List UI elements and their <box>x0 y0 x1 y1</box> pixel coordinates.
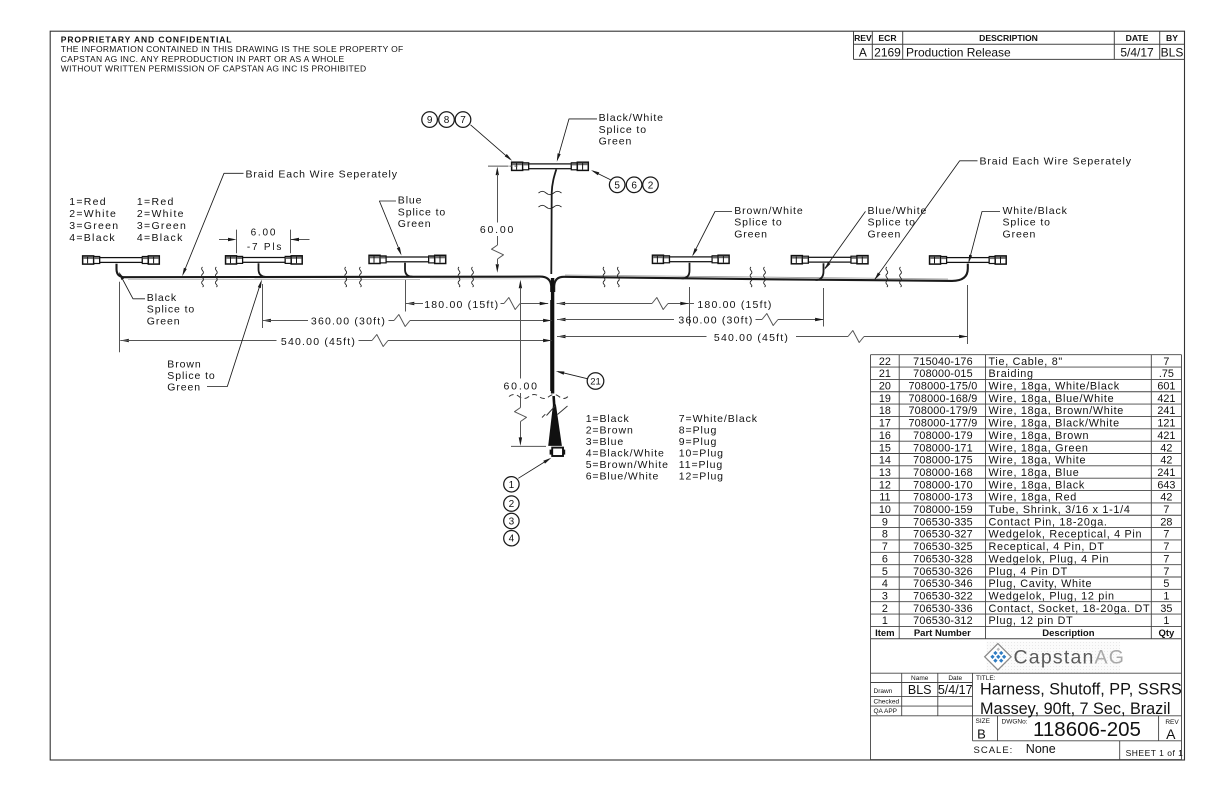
svg-text:118606-205: 118606-205 <box>1033 718 1141 741</box>
svg-text:Contact, Socket, 18-20ga. DT: Contact, Socket, 18-20ga. DT <box>989 603 1151 615</box>
svg-text:REV: REV <box>1165 719 1179 726</box>
svg-text:Description: Description <box>1042 628 1094 639</box>
svg-text:4: 4 <box>882 578 888 590</box>
svg-text:REV: REV <box>854 33 872 43</box>
svg-text:16: 16 <box>879 430 891 442</box>
svg-text:B: B <box>977 727 986 742</box>
svg-text:2: 2 <box>509 499 515 510</box>
svg-text:42: 42 <box>1160 442 1172 454</box>
svg-text:706530-335: 706530-335 <box>913 516 973 528</box>
svg-text:708000-168/9: 708000-168/9 <box>908 393 977 405</box>
svg-text:Drawn: Drawn <box>874 688 893 695</box>
svg-text:421: 421 <box>1157 393 1175 405</box>
svg-text:4: 4 <box>509 534 515 545</box>
svg-text:Wire, 18ga, Black/White: Wire, 18ga, Black/White <box>989 418 1120 430</box>
svg-text:CAPSTAN AG INC. ANY REPRODUCTI: CAPSTAN AG INC. ANY REPRODUCTION IN PART… <box>61 54 345 64</box>
svg-text:715040-176: 715040-176 <box>913 356 973 368</box>
svg-text:BY: BY <box>1166 33 1178 43</box>
svg-text:8=Plug: 8=Plug <box>679 424 717 436</box>
svg-text:180.00 (15ft): 180.00 (15ft) <box>697 299 772 311</box>
svg-text:4=Black: 4=Black <box>69 232 116 244</box>
svg-text:Green: Green <box>147 315 181 327</box>
svg-text:3=Green: 3=Green <box>69 220 119 232</box>
svg-text:1: 1 <box>882 615 888 627</box>
svg-text:708000-173: 708000-173 <box>913 492 973 504</box>
svg-text:241: 241 <box>1157 467 1175 479</box>
svg-text:9=Plug: 9=Plug <box>679 436 717 448</box>
svg-text:Green: Green <box>1003 228 1037 240</box>
svg-text:706530-327: 706530-327 <box>913 529 973 541</box>
svg-text:BLS: BLS <box>908 683 932 697</box>
svg-text:Part Number: Part Number <box>914 628 971 639</box>
svg-text:WITHOUT WRITTEN PERMISSION OF: WITHOUT WRITTEN PERMISSION OF CAPSTAN AG… <box>61 64 367 74</box>
svg-text:10=Plug: 10=Plug <box>679 447 724 459</box>
svg-text:706530-346: 706530-346 <box>913 578 973 590</box>
svg-text:1: 1 <box>1163 590 1169 602</box>
svg-text:7: 7 <box>460 115 466 126</box>
svg-text:12: 12 <box>879 479 891 491</box>
svg-text:28: 28 <box>1160 516 1172 528</box>
svg-text:8: 8 <box>444 115 450 126</box>
svg-text:DESCRIPTION: DESCRIPTION <box>979 33 1038 43</box>
svg-text:60.00: 60.00 <box>480 224 515 236</box>
svg-text:9: 9 <box>427 115 433 126</box>
svg-text:SHEET 1 of 1: SHEET 1 of 1 <box>1126 748 1184 758</box>
svg-text:CapstanAG: CapstanAG <box>1014 647 1126 669</box>
svg-text:35: 35 <box>1160 603 1172 615</box>
svg-text:3=Green: 3=Green <box>137 220 187 232</box>
svg-text:7=White/Black: 7=White/Black <box>679 413 758 425</box>
svg-text:643: 643 <box>1157 479 1175 491</box>
svg-text:708000-168: 708000-168 <box>913 467 973 479</box>
svg-text:2: 2 <box>882 603 888 615</box>
svg-text:Item: Item <box>875 628 895 639</box>
svg-text:.75: .75 <box>1159 368 1174 380</box>
svg-text:708000-175: 708000-175 <box>913 455 973 467</box>
svg-text:Splice to: Splice to <box>147 304 195 316</box>
svg-text:Wire, 18ga, White/Black: Wire, 18ga, White/Black <box>989 381 1120 393</box>
svg-text:Splice to: Splice to <box>1003 217 1051 229</box>
svg-text:Harness, Shutoff, PP, SSRS: Harness, Shutoff, PP, SSRS <box>980 680 1182 698</box>
svg-text:706530-322: 706530-322 <box>913 590 973 602</box>
svg-text:QA APP: QA APP <box>874 708 898 715</box>
svg-text:8: 8 <box>882 529 888 541</box>
svg-text:6.00: 6.00 <box>251 228 278 239</box>
svg-text:12=Plug: 12=Plug <box>679 470 724 482</box>
svg-text:18: 18 <box>879 405 891 417</box>
svg-text:Wire, 18ga, Blue/White: Wire, 18ga, Blue/White <box>989 393 1115 405</box>
svg-text:Wire, 18ga, White: Wire, 18ga, White <box>989 455 1087 467</box>
svg-text:1=Red: 1=Red <box>69 196 107 208</box>
svg-text:Splice to: Splice to <box>599 124 647 136</box>
svg-text:6: 6 <box>631 180 637 191</box>
svg-text:Name: Name <box>911 675 929 682</box>
svg-text:Green: Green <box>398 218 432 230</box>
svg-text:Braiding: Braiding <box>989 368 1034 380</box>
svg-text:SCALE:: SCALE: <box>974 745 1014 756</box>
svg-text:7: 7 <box>1163 356 1169 368</box>
svg-text:5: 5 <box>1163 578 1169 590</box>
svg-text:1: 1 <box>1163 615 1169 627</box>
svg-text:241: 241 <box>1157 405 1175 417</box>
svg-text:5/4/17: 5/4/17 <box>1120 46 1154 60</box>
svg-text:706530-326: 706530-326 <box>913 566 973 578</box>
svg-text:Wire, 18ga, Brown: Wire, 18ga, Brown <box>989 430 1090 442</box>
svg-text:1=Black: 1=Black <box>586 413 630 425</box>
svg-text:Blue: Blue <box>398 195 423 207</box>
svg-text:2=Brown: 2=Brown <box>586 424 634 436</box>
svg-text:9: 9 <box>882 516 888 528</box>
svg-text:A: A <box>859 46 867 60</box>
svg-text:2=White: 2=White <box>137 208 185 220</box>
svg-text:13: 13 <box>879 467 891 479</box>
svg-text:540.00 (45ft): 540.00 (45ft) <box>714 332 789 344</box>
svg-text:Date: Date <box>948 675 962 682</box>
svg-text:706530-325: 706530-325 <box>913 541 973 553</box>
svg-text:14: 14 <box>879 455 891 467</box>
svg-text:Wedgelok, Plug, 12 pin: Wedgelok, Plug, 12 pin <box>989 590 1115 602</box>
svg-text:10: 10 <box>879 504 891 516</box>
svg-text:-7 Pls: -7 Pls <box>247 242 283 253</box>
svg-text:706530-336: 706530-336 <box>913 603 973 615</box>
svg-text:20: 20 <box>879 381 891 393</box>
svg-text:2=White: 2=White <box>69 208 117 220</box>
svg-text:5/4/17: 5/4/17 <box>938 683 973 697</box>
svg-text:708000-179: 708000-179 <box>913 430 973 442</box>
svg-text:ECR: ECR <box>878 33 897 43</box>
svg-text:5: 5 <box>614 180 620 191</box>
svg-text:Wire, 18ga, Red: Wire, 18ga, Red <box>989 492 1078 504</box>
svg-text:Green: Green <box>734 228 768 240</box>
svg-text:15: 15 <box>879 442 891 454</box>
svg-text:1=Red: 1=Red <box>137 196 175 208</box>
svg-text:Contact Pin, 18-20ga.: Contact Pin, 18-20ga. <box>989 516 1108 528</box>
svg-text:708000-179/9: 708000-179/9 <box>908 405 977 417</box>
svg-text:Brown: Brown <box>167 358 201 370</box>
svg-text:Splice to: Splice to <box>398 206 446 218</box>
svg-text:Braid Each Wire Seperately: Braid Each Wire Seperately <box>246 168 398 180</box>
svg-text:2: 2 <box>648 180 654 191</box>
svg-text:11: 11 <box>879 492 890 504</box>
svg-text:708000-175/0: 708000-175/0 <box>908 381 977 393</box>
svg-text:Black/White: Black/White <box>599 112 664 124</box>
svg-text:60.00: 60.00 <box>504 381 539 393</box>
svg-text:Plug, Cavity, White: Plug, Cavity, White <box>989 578 1093 590</box>
svg-text:1: 1 <box>509 480 515 491</box>
svg-text:21: 21 <box>879 368 891 380</box>
svg-text:Green: Green <box>167 382 201 394</box>
svg-text:706530-312: 706530-312 <box>913 615 973 627</box>
svg-text:Brown/White: Brown/White <box>734 205 803 217</box>
svg-text:Splice to: Splice to <box>868 217 916 229</box>
svg-text:Qty: Qty <box>1158 628 1175 639</box>
svg-text:11=Plug: 11=Plug <box>679 459 723 471</box>
svg-text:Splice to: Splice to <box>734 217 782 229</box>
svg-text:Checked: Checked <box>874 698 900 705</box>
svg-text:Plug, 4 Pin DT: Plug, 4 Pin DT <box>989 566 1068 578</box>
svg-text:601: 601 <box>1157 381 1175 393</box>
svg-text:Splice to: Splice to <box>167 370 215 382</box>
svg-text:708000-171: 708000-171 <box>913 442 973 454</box>
svg-text:42: 42 <box>1160 455 1172 467</box>
svg-text:540.00 (45ft): 540.00 (45ft) <box>281 336 356 348</box>
svg-text:Wire, 18ga, Blue: Wire, 18ga, Blue <box>989 467 1080 479</box>
svg-text:7: 7 <box>882 541 888 553</box>
svg-text:Green: Green <box>599 136 633 148</box>
svg-text:Black: Black <box>147 292 177 304</box>
svg-text:6=Blue/White: 6=Blue/White <box>586 470 660 482</box>
svg-text:SIZE: SIZE <box>976 718 991 725</box>
svg-text:19: 19 <box>879 393 891 405</box>
svg-text:Plug, 12 pin DT: Plug, 12 pin DT <box>989 615 1074 627</box>
svg-text:A: A <box>1166 726 1176 742</box>
svg-text:Receptical, 4 Pin, DT: Receptical, 4 Pin, DT <box>989 541 1105 553</box>
svg-text:180.00 (15ft): 180.00 (15ft) <box>424 299 499 311</box>
svg-text:Wedgelok, Plug, 4 Pin: Wedgelok, Plug, 4 Pin <box>989 553 1110 565</box>
svg-text:708000-015: 708000-015 <box>913 368 973 380</box>
svg-text:Wire, 18ga, Black: Wire, 18ga, Black <box>989 479 1086 491</box>
svg-text:121: 121 <box>1157 418 1175 430</box>
svg-text:7: 7 <box>1163 541 1169 553</box>
svg-text:6: 6 <box>882 553 888 565</box>
svg-text:4=Black: 4=Black <box>137 232 184 244</box>
svg-text:THE INFORMATION CONTAINED IN T: THE INFORMATION CONTAINED IN THIS DRAWIN… <box>61 44 404 54</box>
svg-text:3: 3 <box>509 517 515 528</box>
svg-text:Wire, 18ga, Green: Wire, 18ga, Green <box>989 442 1089 454</box>
svg-text:Wedgelok, Receptical, 4 Pin: Wedgelok, Receptical, 4 Pin <box>989 529 1143 541</box>
svg-text:Massey, 90ft, 7 Sec, Brazil: Massey, 90ft, 7 Sec, Brazil <box>980 700 1170 718</box>
svg-text:7: 7 <box>1163 504 1169 516</box>
svg-text:17: 17 <box>879 418 891 430</box>
svg-text:7: 7 <box>1163 566 1169 578</box>
svg-text:Production Release: Production Release <box>906 46 1011 60</box>
svg-text:21: 21 <box>590 376 601 387</box>
svg-text:706530-328: 706530-328 <box>913 553 973 565</box>
svg-text:White/Black: White/Black <box>1003 205 1068 217</box>
svg-text:3=Blue: 3=Blue <box>586 436 624 448</box>
svg-text:Tie, Cable, 8": Tie, Cable, 8" <box>989 356 1063 368</box>
svg-text:Tube, Shrink, 3/16 x 1-1/4: Tube, Shrink, 3/16 x 1-1/4 <box>989 504 1131 516</box>
svg-text:None: None <box>1026 742 1056 756</box>
svg-text:4=Black/White: 4=Black/White <box>586 447 665 459</box>
svg-text:5=Brown/White: 5=Brown/White <box>586 459 669 471</box>
svg-text:DATE: DATE <box>1126 33 1149 43</box>
svg-text:421: 421 <box>1157 430 1175 442</box>
svg-text:708000-170: 708000-170 <box>913 479 973 491</box>
svg-text:5: 5 <box>882 566 888 578</box>
svg-text:Blue/White: Blue/White <box>868 205 928 217</box>
svg-text:Wire, 18ga, Brown/White: Wire, 18ga, Brown/White <box>989 405 1125 417</box>
svg-text:7: 7 <box>1163 553 1169 565</box>
svg-text:360.00 (30ft): 360.00 (30ft) <box>311 316 386 328</box>
svg-text:360.00 (30ft): 360.00 (30ft) <box>678 315 753 327</box>
svg-text:2169: 2169 <box>874 46 901 60</box>
svg-text:3: 3 <box>882 590 888 602</box>
svg-text:22: 22 <box>879 356 891 368</box>
svg-text:708000-177/9: 708000-177/9 <box>908 418 977 430</box>
svg-text:Green: Green <box>868 228 902 240</box>
svg-text:7: 7 <box>1163 529 1169 541</box>
svg-text:42: 42 <box>1160 492 1172 504</box>
svg-text:708000-159: 708000-159 <box>913 504 973 516</box>
svg-text:BLS: BLS <box>1161 46 1184 60</box>
svg-text:Braid Each Wire Seperately: Braid Each Wire Seperately <box>980 156 1132 168</box>
svg-text:DWGNo:: DWGNo: <box>1002 719 1028 726</box>
